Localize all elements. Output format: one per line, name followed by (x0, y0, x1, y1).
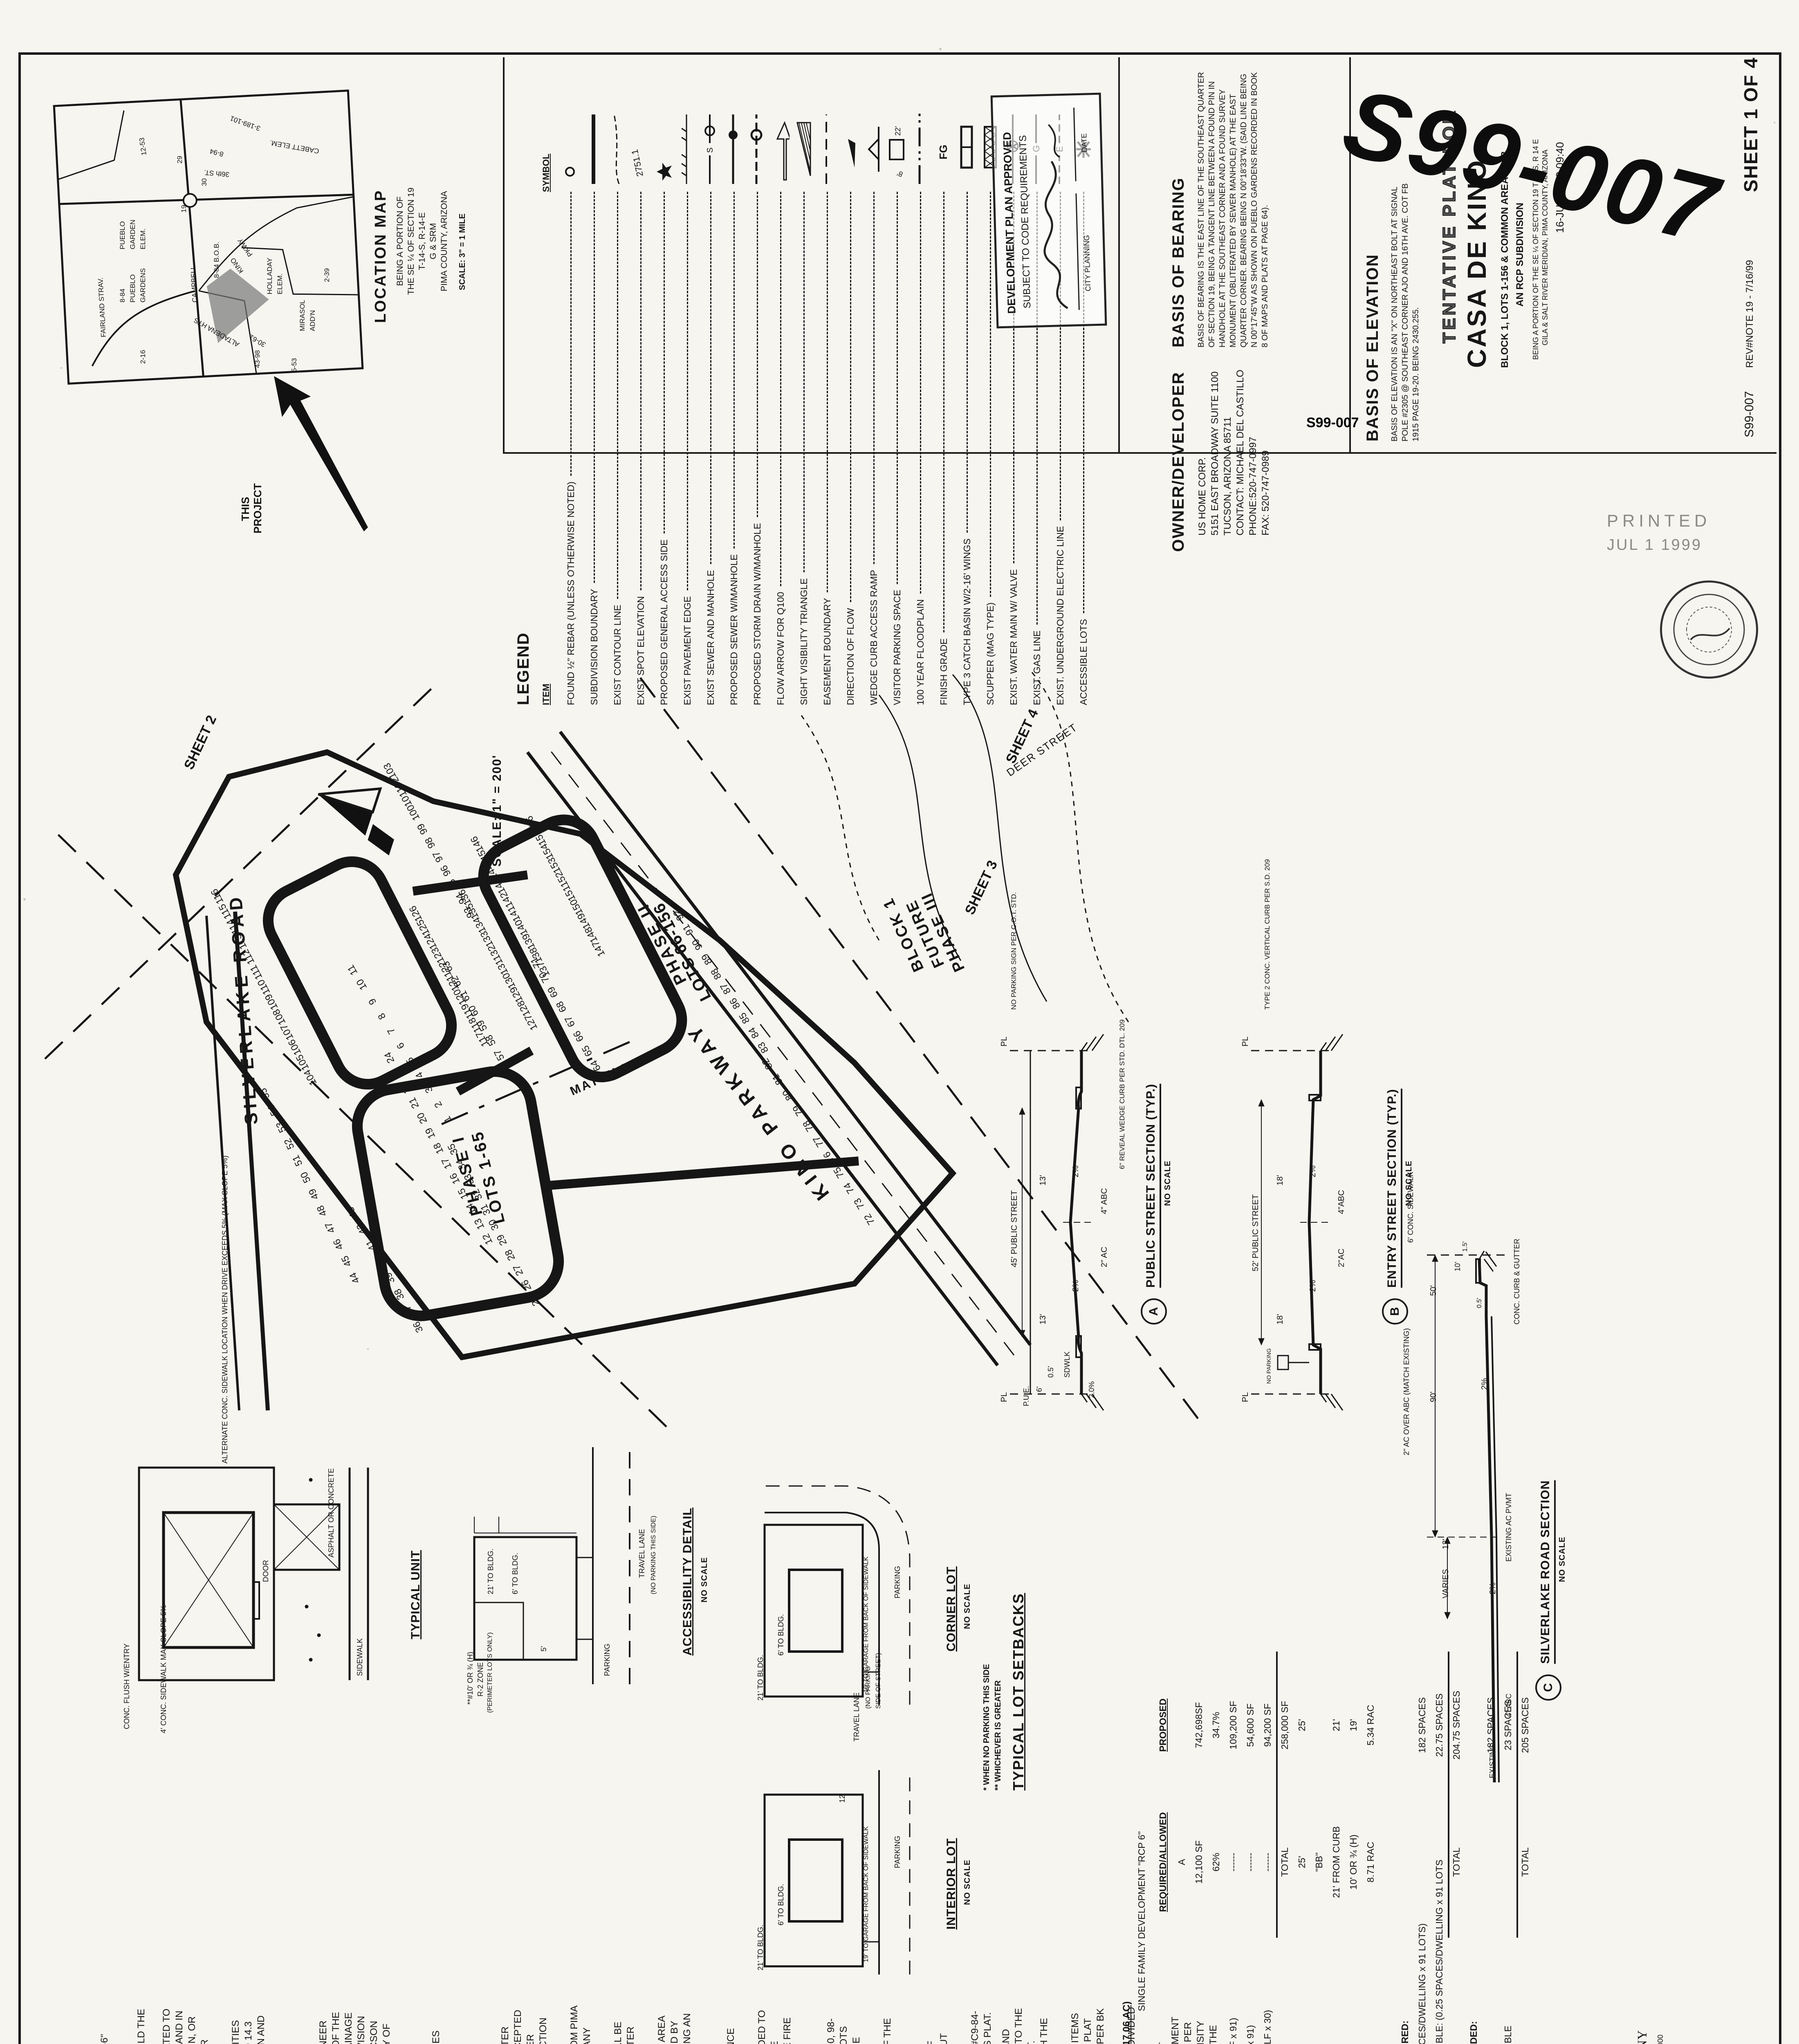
scanned-plat-page: GENERAL NOTES 1.GROSS AREA: 28.5 AC 1,24… (0, 0, 1799, 2044)
scan-noise (0, 0, 1799, 2044)
